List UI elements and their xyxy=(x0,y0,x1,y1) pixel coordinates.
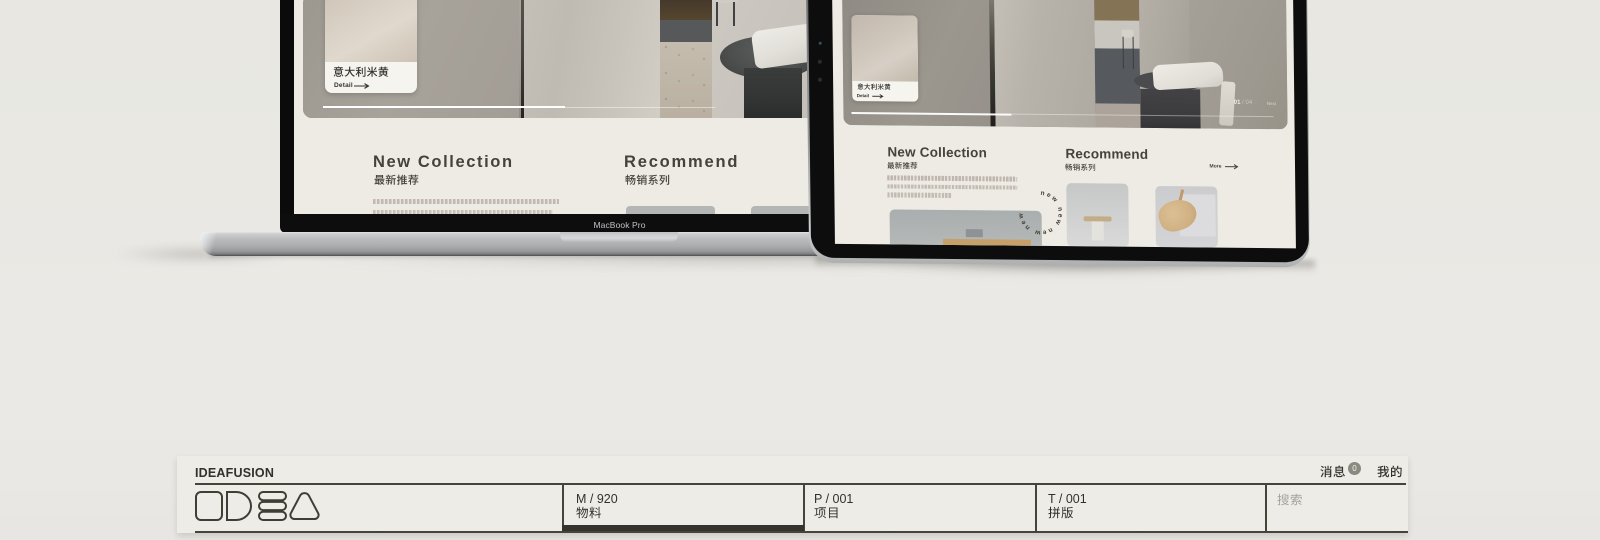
svg-text:new new new new: new new new new xyxy=(1017,189,1064,236)
